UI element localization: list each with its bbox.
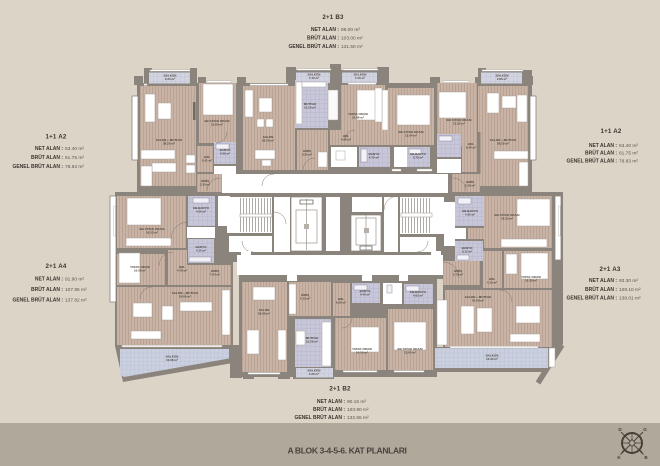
svg-text:BRÜT ALAN :: BRÜT ALAN : — [313, 406, 345, 413]
svg-text:2+1 A4: 2+1 A4 — [45, 263, 66, 270]
svg-text:GENEL BRÜT ALAN :: GENEL BRÜT ALAN : — [12, 163, 63, 170]
svg-text:BALKON2.66 m²: BALKON2.66 m² — [496, 74, 509, 81]
svg-text:A BLOK 3-4-5-6. KAT PLANLARI: A BLOK 3-4-5-6. KAT PLANLARI — [287, 446, 406, 456]
svg-text:BALKON1.66 m²: BALKON1.66 m² — [308, 369, 321, 376]
svg-text:BANYO4.40 m²: BANYO4.40 m² — [360, 289, 372, 296]
svg-text:NET ALAN :: NET ALAN : — [317, 399, 345, 405]
svg-text:91.90 m²: 91.90 m² — [65, 277, 84, 283]
svg-text:93.30 m²: 93.30 m² — [619, 278, 638, 284]
svg-text:BALKON10.08 m²: BALKON10.08 m² — [166, 355, 179, 363]
svg-text:G: G — [643, 427, 647, 432]
svg-text:GENEL BRÜT ALAN :: GENEL BRÜT ALAN : — [288, 43, 339, 50]
svg-text:BANYO4.06 m²: BANYO4.06 m² — [220, 148, 232, 155]
svg-text:BRÜT ALAN :: BRÜT ALAN : — [585, 150, 617, 157]
svg-text:SALON26.16 m²: SALON26.16 m² — [262, 135, 274, 143]
svg-text:61.75 m²: 61.75 m² — [65, 155, 84, 161]
svg-text:BRÜT ALAN :: BRÜT ALAN : — [31, 154, 63, 161]
svg-text:132.65 m²: 132.65 m² — [347, 415, 369, 421]
svg-text:BRÜT ALAN :: BRÜT ALAN : — [31, 286, 63, 293]
svg-text:103.00 m²: 103.00 m² — [341, 36, 363, 42]
svg-text:BANYO4.75 m²: BANYO4.75 m² — [369, 152, 381, 159]
svg-text:78.83 m²: 78.83 m² — [619, 159, 638, 165]
svg-text:BALKON7.40 m²: BALKON7.40 m² — [308, 72, 321, 79]
svg-text:GİRİŞ3.10 m²: GİRİŞ3.10 m² — [465, 179, 475, 187]
svg-text:BALKON7.20 m²: BALKON7.20 m² — [354, 72, 367, 79]
svg-text:GİRİŞ3.10 m²: GİRİŞ3.10 m² — [200, 178, 210, 186]
svg-text:BALKON2.20 m²: BALKON2.20 m² — [164, 74, 177, 81]
svg-text:138.01 m²: 138.01 m² — [619, 296, 641, 302]
svg-text:MUTFAK10.26 m²: MUTFAK10.26 m² — [306, 336, 319, 344]
svg-text:MUTFAK10.25 m²: MUTFAK10.25 m² — [304, 102, 317, 110]
svg-text:BRÜT ALAN :: BRÜT ALAN : — [307, 35, 339, 42]
svg-text:107.95 m²: 107.95 m² — [65, 287, 87, 293]
svg-text:137.82 m²: 137.82 m² — [65, 298, 87, 304]
svg-text:NET ALAN :: NET ALAN : — [35, 146, 63, 152]
svg-text:NET ALAN :: NET ALAN : — [35, 277, 63, 283]
svg-text:GİRİŞ4.13 m²: GİRİŞ4.13 m² — [300, 292, 310, 300]
svg-text:NET ALAN :: NET ALAN : — [589, 278, 617, 284]
svg-text:108.10 m²: 108.10 m² — [619, 287, 641, 293]
svg-text:2+1 A3: 2+1 A3 — [599, 266, 620, 273]
svg-text:GENEL BRÜT ALAN :: GENEL BRÜT ALAN : — [566, 295, 617, 302]
svg-text:53.40 m²: 53.40 m² — [65, 146, 84, 152]
svg-text:BANYO4.10 m²: BANYO4.10 m² — [196, 245, 208, 252]
svg-text:GİRİŞ3.20 m²: GİRİŞ3.20 m² — [302, 148, 312, 156]
svg-text:89.00 m²: 89.00 m² — [341, 27, 360, 33]
svg-text:GENEL BRÜT ALAN :: GENEL BRÜT ALAN : — [12, 297, 63, 304]
svg-text:GENEL BRÜT ALAN :: GENEL BRÜT ALAN : — [294, 414, 345, 421]
svg-text:SALON26.66 m²: SALON26.66 m² — [258, 308, 270, 316]
svg-text:BALKON12.30 m²: BALKON12.30 m² — [486, 354, 499, 362]
svg-text:BANYO3.12 m²: BANYO3.12 m² — [462, 246, 474, 253]
svg-text:131.50 m²: 131.50 m² — [341, 44, 363, 50]
svg-text:90.15 m²: 90.15 m² — [347, 399, 366, 405]
svg-text:GİRİŞ2.73 m²: GİRİŞ2.73 m² — [453, 268, 463, 276]
svg-text:GENEL BRÜT ALAN :: GENEL BRÜT ALAN : — [566, 158, 617, 165]
svg-text:GİRİŞ7.54 m²: GİRİŞ7.54 m² — [210, 268, 220, 276]
svg-text:103.90 m²: 103.90 m² — [347, 407, 369, 413]
svg-text:1+1 A2: 1+1 A2 — [45, 134, 66, 141]
svg-text:NET ALAN :: NET ALAN : — [311, 27, 339, 33]
svg-text:BRÜT ALAN :: BRÜT ALAN : — [585, 286, 617, 293]
svg-text:78.83 m²: 78.83 m² — [65, 164, 84, 170]
svg-text:2+1 B3: 2+1 B3 — [322, 14, 344, 21]
svg-text:2+1 B2: 2+1 B2 — [329, 386, 351, 393]
svg-text:53.40 m²: 53.40 m² — [619, 143, 638, 149]
svg-text:NET ALAN :: NET ALAN : — [589, 143, 617, 149]
svg-text:1+1 A2: 1+1 A2 — [600, 128, 621, 135]
svg-text:61.75 m²: 61.75 m² — [619, 151, 638, 157]
